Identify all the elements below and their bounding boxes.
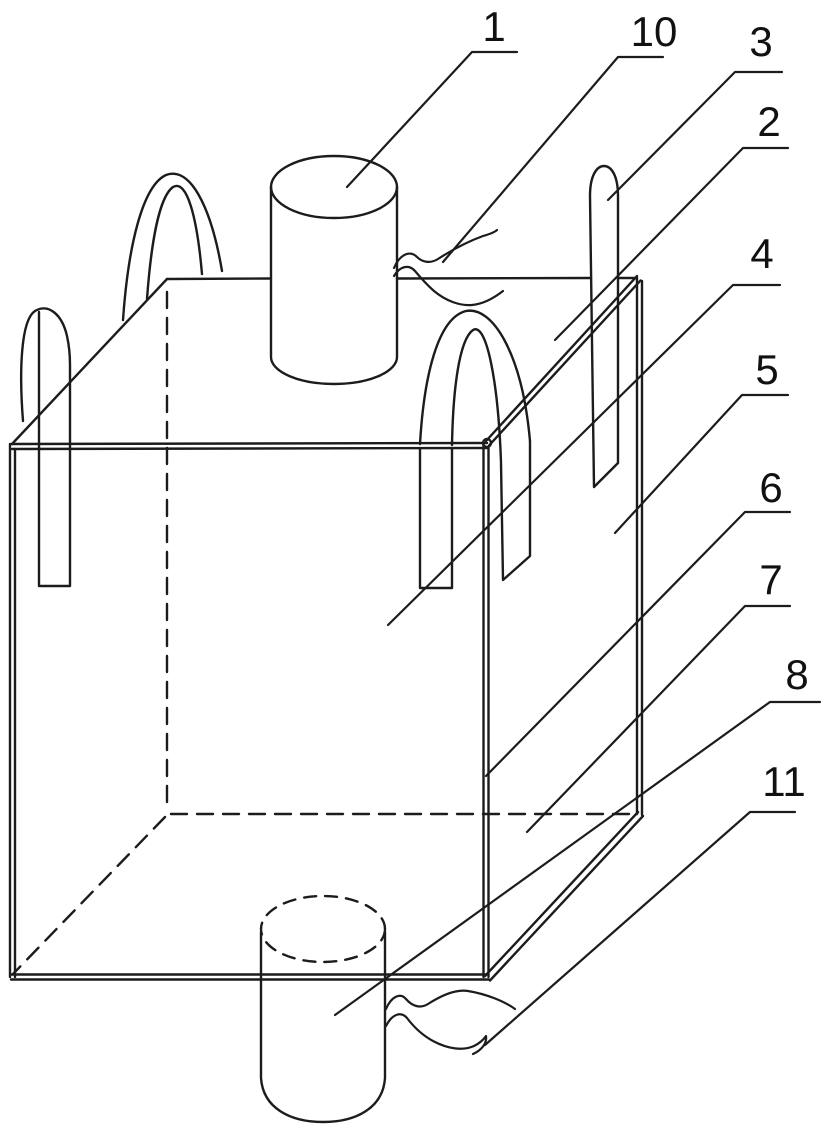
patent-figure: 110324567811	[0, 0, 826, 1134]
bottom-tie-strand-b	[386, 1014, 486, 1054]
top-back-edge	[167, 278, 637, 279]
bag-drawing	[10, 156, 643, 1122]
figure-canvas: 110324567811	[0, 0, 826, 1134]
ref-label-1: 1	[482, 3, 505, 50]
leader-line-10	[443, 57, 663, 262]
back-right-loop-strip	[590, 166, 618, 487]
ref-label-8: 8	[785, 651, 808, 698]
front-right-loop-outer	[420, 311, 530, 444]
ref-label-7: 7	[759, 556, 782, 603]
leader-line-8	[335, 702, 820, 1015]
back-left-loop-inner	[147, 186, 202, 299]
leader-line-11	[485, 812, 795, 1045]
front-left-loop-strip	[21, 308, 70, 586]
front-right-edge	[484, 445, 489, 977]
ref-label-5: 5	[755, 346, 778, 393]
ref-label-10: 10	[631, 8, 678, 55]
front-left-edge	[10, 444, 15, 977]
top-left-edge	[12, 279, 167, 444]
fill-spout-top	[271, 156, 397, 218]
leader-line-4	[388, 285, 780, 625]
ref-label-6: 6	[759, 464, 782, 511]
bottom-right-edge	[485, 812, 643, 981]
back-left-loop-outer	[123, 174, 222, 320]
leader-line-1	[347, 52, 517, 187]
ref-label-2: 2	[757, 98, 780, 145]
top-tie-strand-a	[394, 230, 497, 268]
back-right-edge	[637, 278, 642, 815]
top-tie-strand-b	[394, 267, 503, 305]
bottom-front-edge	[11, 975, 489, 980]
bottom-tie-strand-a	[386, 991, 515, 1009]
front-top-edge	[12, 443, 487, 449]
ref-label-11: 11	[762, 758, 806, 805]
hidden-bottom-left-edge	[13, 817, 165, 974]
leader-line-7	[527, 606, 790, 832]
ref-label-3: 3	[749, 18, 772, 65]
reference-labels: 110324567811	[335, 3, 820, 1045]
fill-spout-body	[271, 187, 397, 384]
discharge-spout-top	[261, 896, 385, 962]
ref-label-4: 4	[750, 230, 773, 277]
discharge-spout-body	[261, 932, 385, 1122]
leader-line-3	[608, 72, 782, 200]
